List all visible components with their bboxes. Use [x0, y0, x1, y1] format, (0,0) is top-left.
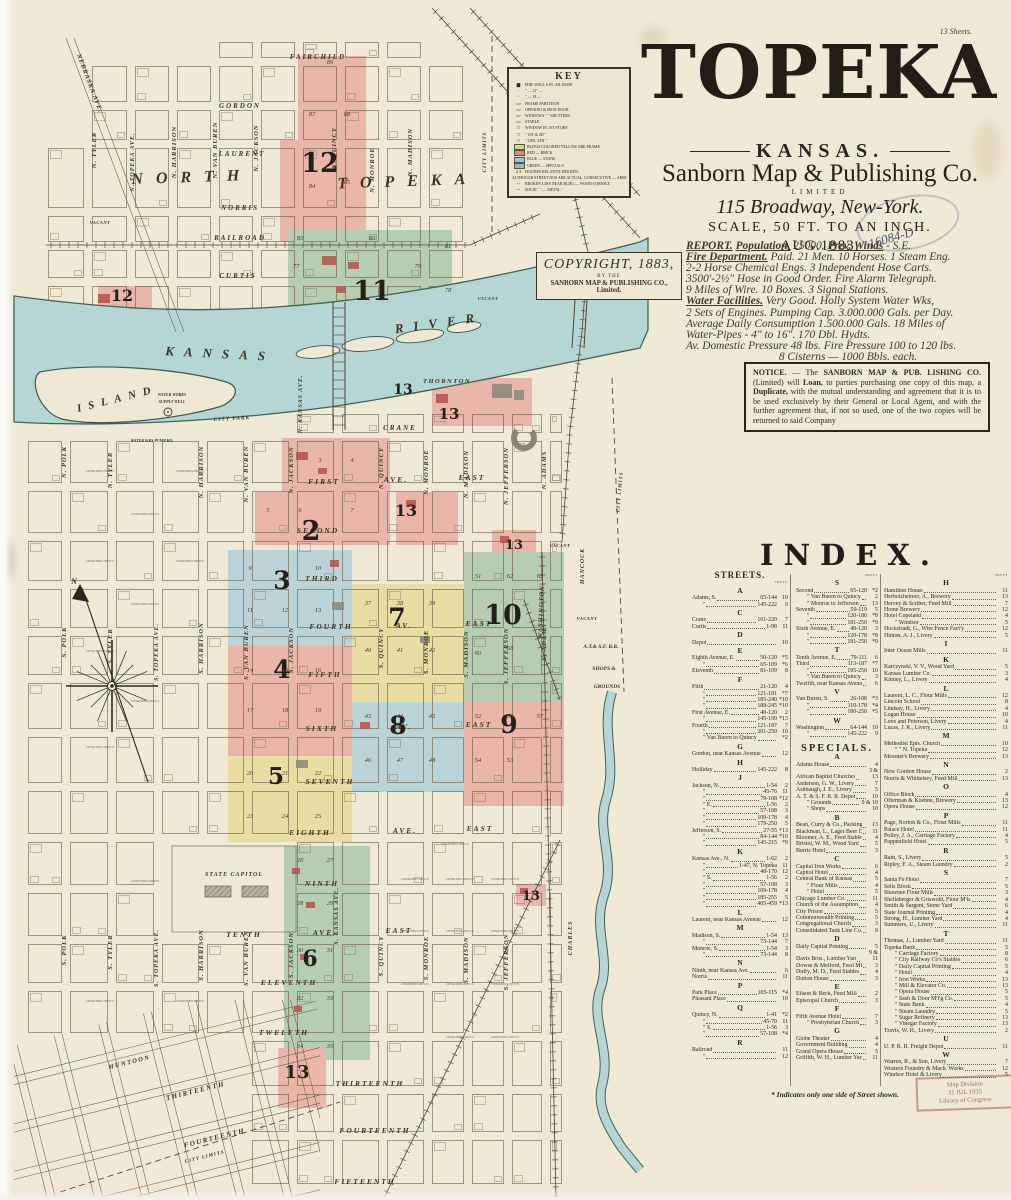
index-entry: Summers, U., Livery11	[884, 922, 1008, 928]
lot-number: 22	[315, 770, 322, 777]
street-label: THIRTEENTH	[165, 1080, 226, 1102]
index-letter: T	[796, 647, 878, 653]
key-title: KEY	[512, 71, 626, 82]
street-label: NEBRASKA AVE.	[75, 52, 104, 114]
lot-number: 18	[282, 707, 289, 714]
index-letter: G	[796, 1028, 878, 1034]
streets-heading: STREETS.	[692, 572, 788, 578]
detached-dwelling-note: DETACHED DW'G'S	[130, 879, 159, 883]
sanborn-map-sheet: FAIRCHILDGORDONLAURENTNORRISRAILROADCURT…	[0, 0, 1011, 1200]
index-letter: F	[692, 677, 788, 683]
lot-number: 39	[428, 600, 436, 607]
street-label: GORDON	[219, 102, 261, 110]
copyright-line: COPYRIGHT, 1883,	[539, 257, 679, 273]
lot-number: 28	[297, 900, 304, 907]
index-letter: T	[884, 931, 1008, 937]
district-number: 11	[353, 276, 391, 307]
index-letter: Q	[692, 1005, 788, 1011]
detached-dwelling-note: DETACHED DW'G'S	[85, 745, 114, 749]
district-number: 10	[484, 600, 522, 631]
lot-number: 19	[315, 707, 322, 714]
color-swatch	[514, 150, 525, 156]
scan-edge	[0, 0, 13, 1200]
lot-number: 23	[247, 813, 254, 820]
lot-number: 47	[397, 757, 404, 764]
key-symbol: ─	[512, 187, 525, 193]
district-number: 3	[273, 566, 290, 595]
index-letter: D	[692, 632, 788, 638]
index-letter: R	[692, 1040, 788, 1046]
district-number: 12	[301, 148, 339, 179]
street-label: SUPPLY WELL	[159, 399, 186, 404]
detached-dwelling-note: DETACHED DW'G'S	[440, 842, 469, 846]
index-letter: S	[796, 580, 878, 586]
index-letter: U	[884, 1036, 1008, 1042]
lot-number: 27	[327, 857, 334, 864]
index-letter: A	[692, 588, 788, 594]
street-label: NINTH	[304, 879, 339, 888]
detached-dwelling-note: DETACHED DW'G'S	[445, 982, 474, 986]
lot-number: 21	[282, 770, 289, 777]
lot-number: 43	[365, 713, 372, 720]
index-letter: F	[796, 1006, 878, 1012]
lot-number: 45	[429, 713, 436, 720]
gas-works	[510, 424, 538, 452]
lot-number: 77	[293, 263, 300, 270]
street-label: EAST	[465, 720, 493, 729]
lot-number: 30	[296, 947, 304, 954]
index-letter: O	[884, 784, 1008, 790]
street-label: CRANE	[383, 424, 417, 432]
index-letter: I	[884, 641, 1008, 647]
index-entry: Dutton House3	[796, 976, 878, 982]
street-label: WATER WKS PUMP HO.	[130, 438, 173, 443]
lot-number: 54	[475, 757, 482, 764]
lot-number: 52	[475, 713, 482, 720]
index-letter: G	[692, 744, 788, 750]
lot-number: 78	[445, 287, 452, 294]
index-letter: A	[796, 754, 878, 760]
lot-number: 29	[327, 900, 334, 907]
street-label: S. TOPEKA AVE.	[154, 623, 160, 681]
index-entry: Kinney, L., Livery4	[884, 677, 1008, 683]
index-letter: L	[884, 686, 1008, 692]
street-label: EAST	[458, 473, 486, 482]
street-label: CITY LIMITS	[616, 471, 625, 512]
index-entry: "12	[692, 1054, 788, 1060]
street-label: FOURTEENTH	[183, 1127, 246, 1150]
index-column-streets: STREETS. SHEET AAdams, S.65-14410"145-22…	[692, 572, 788, 1060]
rule-left	[690, 151, 750, 152]
sheet-column-label: SHEET	[692, 579, 788, 585]
lot-number: 35	[326, 1043, 334, 1050]
publisher-name: Sanborn Map & Publishing Co.	[640, 160, 1000, 188]
street-label: N. JEFFERSON	[503, 447, 510, 506]
index-letter: W	[796, 718, 878, 724]
lot-number: 26	[297, 857, 304, 864]
street-label: N. JACKSON	[288, 446, 295, 494]
index-letter: C	[796, 856, 878, 862]
lot-number: 14	[247, 667, 254, 674]
street-label: A.T.& S.F. R.R.	[582, 644, 618, 650]
street-label: NORRIS	[220, 204, 259, 212]
lot-number: 31	[326, 947, 334, 954]
column-rule	[880, 574, 881, 1086]
street-label: FAIRCHILD	[290, 53, 346, 61]
detached-dwelling-note: DETACHED DW'G'S	[130, 512, 159, 516]
district-number: 7	[388, 603, 405, 632]
lot-number: 40	[365, 647, 372, 654]
lot-number: 62	[507, 573, 514, 580]
detached-dwelling-note: DETACHED DW'G'S	[85, 649, 114, 653]
notice-box: NOTICE. — The SANBORN MAP & PUB. LISHING…	[744, 362, 990, 432]
street-label: THIRTEENTH	[336, 1079, 405, 1088]
index-entry: Opera House12	[884, 804, 1008, 810]
detached-dwelling-note: DETACHED DW'G'S	[490, 982, 519, 986]
lot-number: 80	[369, 235, 376, 242]
shunganunga-creek	[597, 692, 640, 1170]
district-number: 6	[302, 946, 317, 972]
district-number: 13	[505, 538, 523, 553]
index-entry: "145-215*9	[692, 840, 788, 846]
index-letter: M	[884, 733, 1008, 739]
index-letter: R	[884, 848, 1008, 854]
street-label: CITY LIMITS	[185, 1150, 226, 1165]
street-label: N	[70, 577, 78, 586]
detached-dwelling-note: DETACHED DW'G'S	[445, 877, 474, 881]
street-label: S. HARRISON	[198, 622, 205, 673]
color-swatch	[514, 163, 525, 169]
street-label: TWELFTH	[259, 1028, 309, 1037]
street-label: S. QUINCY	[378, 628, 385, 669]
street-label: GROUNDS	[594, 684, 621, 690]
index-entry: "57-108*4	[692, 1031, 788, 1037]
detached-dwelling-note: DETACHED DW'G'S	[85, 999, 114, 1003]
index-entry: Messner's Brewery13	[884, 754, 1008, 760]
lot-number: 58	[507, 645, 514, 652]
lot-number: 33	[326, 995, 334, 1002]
lot-number: 46	[365, 757, 372, 764]
rule-right	[890, 151, 950, 152]
lot-number: 16	[315, 667, 322, 674]
index-letter: K	[884, 657, 1008, 663]
index-letter: J	[692, 775, 788, 781]
district-number: 13	[284, 1062, 309, 1083]
lot-number: 15	[282, 667, 289, 674]
detached-dwelling-note: DETACHED DW'G'S	[175, 469, 204, 473]
lot-number: 56	[507, 713, 514, 720]
lot-number: 32	[296, 995, 304, 1002]
street-label: VACANT	[577, 616, 598, 621]
lot-number: 79	[415, 263, 422, 270]
index-letter: L	[692, 910, 788, 916]
street-label: THIRD	[305, 574, 339, 583]
lot-number: 81	[445, 243, 452, 250]
street-label: CURTIS	[219, 272, 256, 280]
street-label: S. TOPEKA AVE.	[154, 929, 160, 987]
street-label: N. ADAMS	[541, 451, 548, 490]
street-label: N. QUINCY	[378, 447, 385, 490]
street-label: S. TYLER	[107, 934, 114, 969]
detached-dwelling-note: DETACHED DW'G'S	[400, 929, 429, 933]
detached-dwelling-note: DETACHED DW'G'S	[490, 929, 519, 933]
key-row: ─SOLID " " ― METAL "	[512, 187, 626, 193]
column-rule	[790, 574, 791, 1086]
street-label: THORNTON	[423, 378, 471, 385]
lot-number: 10	[315, 565, 322, 572]
detached-dwelling-note: DETACHED DW'G'S	[445, 929, 474, 933]
lot-number: 83	[297, 235, 304, 242]
lot-number: 53	[507, 757, 514, 764]
lot-number: 84	[309, 183, 316, 190]
lot-number: 89	[327, 59, 334, 66]
street-label: VACANT	[90, 220, 111, 225]
index-entry: " Shops10	[796, 806, 878, 812]
lot-number: 88	[344, 111, 351, 118]
street-label: EAST	[466, 824, 494, 833]
index-letter: W	[884, 1052, 1008, 1058]
index-entry: Norris11	[692, 974, 788, 980]
street-label: AVE.	[383, 475, 408, 484]
street-label: VACANT	[478, 296, 499, 301]
detached-dwelling-note: DETACHED DW'G'S	[490, 1035, 519, 1039]
street-label: SEVENTH	[305, 777, 354, 786]
street-label: SIXTH	[306, 724, 339, 733]
index-heading: INDEX.	[690, 538, 1010, 572]
lot-number: 63	[537, 573, 544, 580]
street-label: S. HARRISON	[198, 929, 205, 980]
street-label: S. JACKSON	[288, 932, 295, 978]
index-entry: " Van Buren to Quincy*2	[692, 735, 788, 741]
color-swatch	[514, 144, 525, 150]
district-number: 13	[522, 889, 540, 904]
map-key-legend: KEY ▆FIRE WALL 6 IN. AB. ROOF··" ― 12" ―…	[507, 67, 631, 198]
street-label: S. MADISON	[463, 630, 470, 677]
index-letter: E	[796, 984, 878, 990]
street-label: SHOPS &	[592, 666, 616, 672]
copyright-line: BY THE	[539, 274, 679, 279]
street-label: N. MADISON	[463, 450, 470, 499]
street-label: WATER WORKS	[158, 392, 187, 397]
index-entry: Twelfth, near Kansas Avenue6	[796, 681, 878, 687]
index-letter: H	[884, 580, 1008, 586]
lot-number: 17	[247, 707, 254, 714]
street-label: FOURTEENTH	[339, 1126, 410, 1135]
street-label: N. VAN BUREN	[243, 446, 250, 504]
street-label: HUNTOON	[107, 1054, 151, 1071]
index-letter: K	[692, 849, 788, 855]
index-entry: "145-2229	[796, 731, 878, 737]
color-swatch	[514, 157, 525, 163]
index-entry: "180-250*5	[796, 709, 878, 715]
lot-number: 12	[282, 607, 289, 614]
lot-number: 87	[309, 111, 316, 118]
lot-number: 48	[429, 757, 436, 764]
page-title: TOPEKA	[628, 36, 1010, 110]
north-arrow	[72, 584, 89, 602]
state-capitol-block	[172, 846, 296, 932]
index-entry: "405-459*13	[692, 901, 788, 907]
street-label: HANCOCK	[580, 548, 586, 585]
street-label: CITY PARK	[213, 415, 250, 423]
index-entry: Gordon, near Kansas Avenue12	[692, 751, 788, 757]
lot-number: 42	[429, 647, 436, 654]
street-label: S. POLK	[61, 935, 68, 966]
report-block: REPORT. Population. 25000. Prev. Winds -…	[686, 241, 1010, 363]
street-label: AVE.	[392, 826, 417, 835]
lot-number: 44	[397, 713, 404, 720]
index-letter: P	[692, 983, 788, 989]
lot-number: 37	[364, 600, 372, 607]
street-label: RAILROAD	[213, 234, 266, 242]
street-label: S. POLK	[61, 627, 68, 658]
street-label: CITY LIMITS	[483, 132, 488, 173]
index-letter: V	[796, 689, 878, 695]
district-number: 12	[111, 286, 133, 305]
index-entry: Davis Bros., Lumber Yards9 & 11	[796, 950, 878, 963]
index-entry: Pappenfield Hotel5	[884, 839, 1008, 845]
index-letter: S	[884, 870, 1008, 876]
lot-number: 34	[296, 1043, 304, 1050]
street-label: ELEVENTH	[260, 978, 317, 987]
street-label: FIFTEENTH	[334, 1177, 395, 1186]
index-entry: Eleventh81-1098	[692, 668, 788, 674]
index-letter: D	[796, 936, 878, 942]
index-column-specials: SHEET HHamilton House11Herbolzheimer, A.…	[884, 572, 1008, 1079]
detached-dwelling-note: DETACHED DW'G'S	[130, 602, 159, 606]
detached-dwelling-note: DETACHED DW'G'S	[175, 559, 204, 563]
street-label: S. KANSAS AVE.	[334, 887, 340, 945]
street-label: NORTH	[130, 167, 253, 188]
lot-number: 51	[475, 573, 482, 580]
district-number: 13	[439, 405, 460, 423]
index-letter: H	[692, 760, 788, 766]
lot-number: 85	[344, 179, 351, 186]
detached-dwelling-note: DETACHED DW'G'S	[400, 877, 429, 881]
district-number: 13	[393, 382, 412, 398]
limited-note: LIMITED	[640, 188, 1000, 196]
lot-number: 60	[475, 650, 482, 657]
detached-dwelling-note: DETACHED DW'G'S	[85, 559, 114, 563]
index-letter: N	[692, 960, 788, 966]
lot-number: 25	[315, 813, 322, 820]
index-letter: M	[692, 925, 788, 931]
street-label: S. JEFFERSON	[503, 628, 510, 685]
lot-number: 13	[315, 607, 322, 614]
city-limits-line	[60, 1102, 340, 1192]
index-column-middle: SHEET SSecond65-120*2" Van Buren to Quin…	[796, 572, 878, 1061]
library-stamp: Map Division 31 JUL 1935 Library of Cong…	[915, 1074, 1011, 1111]
detached-dwelling-note: DETACHED DW'G'S	[445, 1035, 474, 1039]
detached-dwelling-note: DETACHED DW'G'S	[490, 877, 519, 881]
index-entry: Pleasant Place10	[692, 996, 788, 1002]
street-label: N. JACKSON	[253, 124, 260, 172]
index-entry: Inter Ocean Mills11	[884, 648, 1008, 654]
detached-dwelling-note: DETACHED DW'G'S	[400, 982, 429, 986]
detached-dwelling-note: DETACHED DW'G'S	[85, 469, 114, 473]
index-entry: Griffith, W. H., Lumber Yard11	[796, 1055, 878, 1061]
copyright-line: SANBORN MAP & PUBLISHING CO., Limited.	[539, 280, 679, 294]
street-label: FIRST	[308, 477, 340, 486]
street-label: STATE CAPITOL	[205, 872, 263, 878]
street-label: S. QUINCY	[378, 936, 385, 977]
street-label: S. VAN BUREN	[243, 930, 250, 986]
street-label: N. TYLER	[91, 132, 98, 170]
street-label: N. KANSAS AVE.	[298, 375, 304, 435]
street-label: N. MADISON	[407, 128, 414, 177]
street-label: FOURTH	[309, 622, 352, 631]
scan-edge	[0, 1190, 1011, 1200]
detached-dwelling-note: DETACHED DW'G'S	[130, 699, 159, 703]
copyright-box: COPYRIGHT, 1883, BY THE SANBORN MAP & PU…	[536, 252, 682, 300]
lot-number: 11	[247, 607, 253, 614]
street-label: S. MONROE	[423, 936, 430, 980]
street-label: S. TYLER	[107, 628, 114, 663]
street-label: EIGHTH	[288, 828, 331, 837]
street-label: VACANT	[550, 543, 571, 548]
lot-number: 41	[397, 647, 404, 654]
detached-dwelling-note: DETACHED DW'G'S	[175, 999, 204, 1003]
street-label: CHARLES	[568, 921, 574, 956]
lot-number: 38	[396, 600, 404, 607]
lot-number: 57	[537, 713, 544, 720]
district-number: 2	[302, 516, 321, 547]
index-letter: P	[884, 813, 1008, 819]
district-number: 13	[395, 501, 417, 520]
compass-rose	[66, 584, 158, 782]
key-symbol: □	[512, 138, 525, 144]
street-label: FIFTH	[308, 670, 341, 679]
index-letter: N	[884, 762, 1008, 768]
street-label: S. MADISON	[463, 936, 470, 983]
street-label: N. MONROE	[423, 449, 430, 495]
index-letter: B	[796, 815, 878, 821]
lot-number: 20	[247, 770, 254, 777]
index-letter: C	[692, 610, 788, 616]
index-entry: African Baptist Churches3 & 13	[796, 768, 878, 781]
street-label: TOPEKA	[337, 171, 478, 193]
index-letter: E	[692, 648, 788, 654]
lot-number: 24	[282, 813, 289, 820]
street-label: N. POLK	[61, 446, 68, 479]
